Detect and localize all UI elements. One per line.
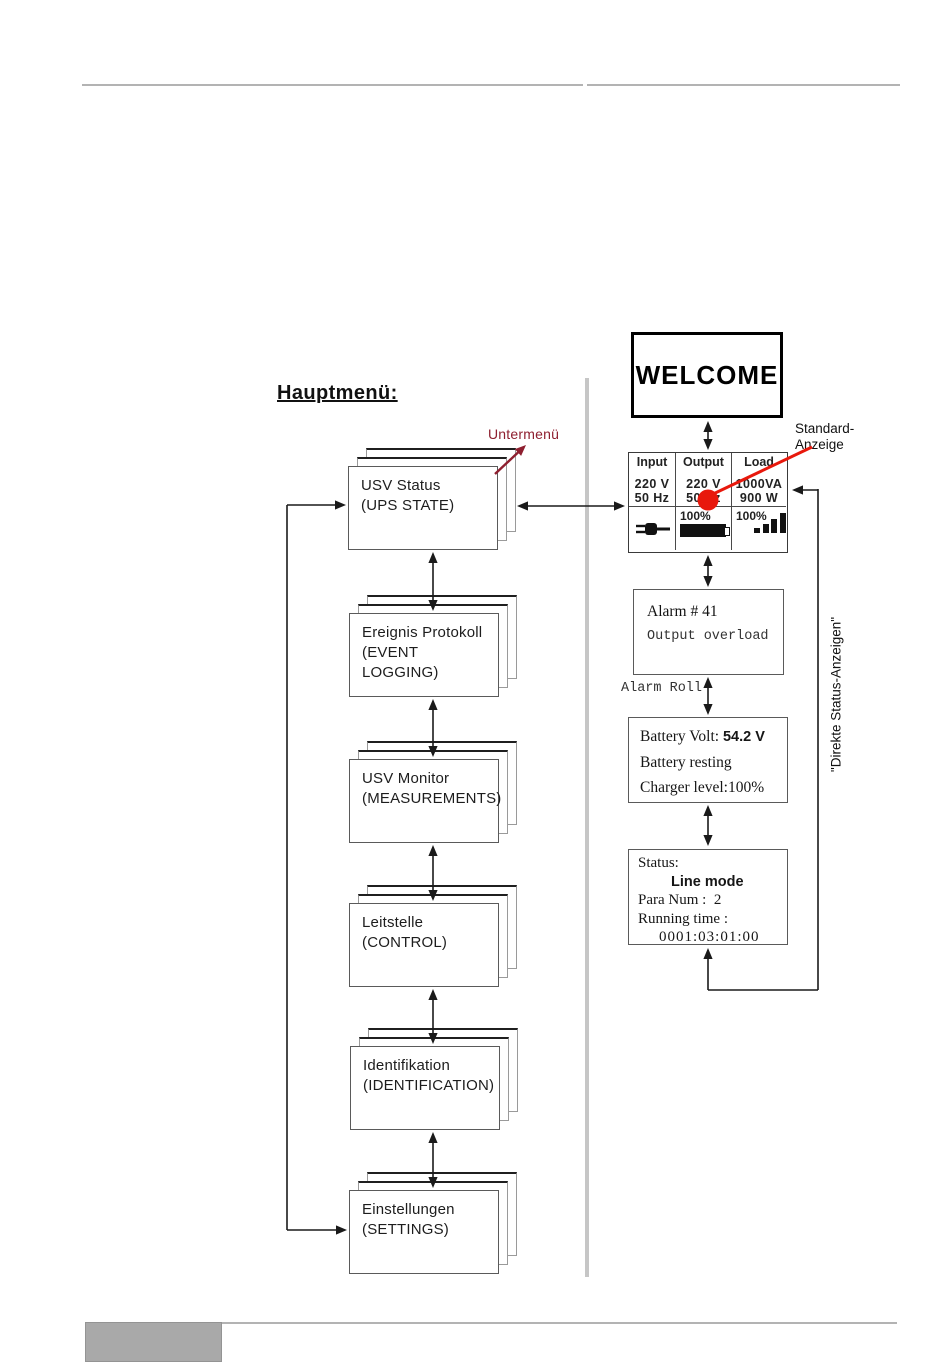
menu-label-de: Leitstelle bbox=[362, 914, 423, 931]
battery-display-box: Battery Volt: 54.2 V Battery resting Cha… bbox=[628, 717, 788, 803]
display-input-cell: Input 220 V 50 Hz bbox=[629, 453, 676, 507]
arrowhead bbox=[428, 699, 437, 710]
menu-label-de: Identifikation bbox=[363, 1057, 450, 1074]
menu-label-en: (SETTINGS) bbox=[362, 1221, 449, 1238]
arrowhead bbox=[614, 501, 625, 510]
menu-item-settings: Einstellungen (SETTINGS) bbox=[349, 1190, 499, 1274]
arrowhead bbox=[703, 421, 712, 432]
arrowhead bbox=[792, 485, 803, 494]
arrowhead bbox=[703, 555, 712, 566]
arrowhead bbox=[703, 805, 712, 816]
alarm-display-box: Alarm # 41 Output overload bbox=[633, 589, 784, 675]
arrowhead bbox=[336, 1225, 347, 1234]
standard-display-label: Standard- Anzeige bbox=[795, 421, 854, 453]
header-rule-right bbox=[587, 84, 900, 86]
column-divider bbox=[585, 378, 589, 1277]
arrowhead bbox=[428, 552, 437, 563]
display-load-cell: Load 1000VA 900 W bbox=[732, 453, 786, 507]
manual-page: Hauptmenü: Untermenü USV Status (UPS STA… bbox=[0, 0, 950, 1364]
menu-label-en: (IDENTIFICATION) bbox=[363, 1077, 494, 1094]
main-menu-heading: Hauptmenü: bbox=[277, 382, 398, 405]
menu-label-en: (CONTROL) bbox=[362, 934, 447, 951]
menu-item-control: Leitstelle (CONTROL) bbox=[349, 903, 499, 987]
arrowhead bbox=[515, 445, 526, 456]
arrowhead bbox=[703, 704, 712, 715]
arrowhead bbox=[335, 500, 346, 509]
menu-label-en: (UPS STATE) bbox=[361, 497, 454, 514]
arrowhead bbox=[703, 835, 712, 846]
menu-card: USV Status (UPS STATE) bbox=[348, 466, 498, 550]
display-mains-cell bbox=[629, 507, 676, 550]
welcome-text: WELCOME bbox=[636, 360, 779, 391]
menu-card: Ereignis Protokoll (EVENT LOGGING) bbox=[349, 613, 499, 697]
status-display-box: Status: Line mode Para Num : 2 Running t… bbox=[628, 849, 788, 945]
welcome-screen-box: WELCOME bbox=[631, 332, 783, 418]
display-loadbars-cell: 100% bbox=[732, 507, 786, 550]
menu-card: USV Monitor (MEASUREMENTS) bbox=[349, 759, 499, 843]
alarm-roll-label: Alarm Roll bbox=[621, 681, 702, 696]
menu-item-event-logging: Ereignis Protokoll (EVENT LOGGING) bbox=[349, 613, 499, 697]
direkte-status-label-wrap: "Direkte Status-Anzeigen" bbox=[736, 687, 936, 702]
footer-block bbox=[85, 1322, 222, 1362]
menu-item-measurements: USV Monitor (MEASUREMENTS) bbox=[349, 759, 499, 843]
menu-label-de: USV Monitor bbox=[362, 770, 449, 787]
standard-status-display: Input 220 V 50 Hz Output 220 V 50 Hz Loa… bbox=[628, 452, 788, 553]
arrowhead bbox=[703, 677, 712, 688]
menu-label-de: Ereignis Protokoll bbox=[362, 624, 482, 641]
menu-card: Einstellungen (SETTINGS) bbox=[349, 1190, 499, 1274]
menu-item-identification: Identifikation (IDENTIFICATION) bbox=[350, 1046, 500, 1130]
arrowhead bbox=[428, 1132, 437, 1143]
menu-label-en: (EVENT LOGGING) bbox=[362, 644, 439, 681]
header-rule-left bbox=[82, 84, 583, 86]
menu-card: Identifikation (IDENTIFICATION) bbox=[350, 1046, 500, 1130]
arrowhead bbox=[428, 845, 437, 856]
submenu-label: Untermenü bbox=[488, 426, 559, 442]
footer-rule bbox=[220, 1322, 897, 1324]
menu-item-ups-state: USV Status (UPS STATE) bbox=[348, 466, 498, 550]
menu-label-en: (MEASUREMENTS) bbox=[362, 790, 501, 807]
arrowhead bbox=[428, 989, 437, 1000]
arrowhead bbox=[703, 576, 712, 587]
display-battery-cell: 100% bbox=[676, 507, 732, 550]
arrowhead bbox=[517, 501, 528, 510]
menu-label-de: USV Status bbox=[361, 477, 441, 494]
display-output-cell: Output 220 V 50 Hz bbox=[676, 453, 732, 507]
arrowhead bbox=[703, 439, 712, 450]
plug-icon bbox=[633, 520, 671, 538]
menu-card: Leitstelle (CONTROL) bbox=[349, 903, 499, 987]
menu-label-de: Einstellungen bbox=[362, 1201, 455, 1218]
battery-icon bbox=[680, 524, 726, 537]
direkte-status-label: "Direkte Status-Anzeigen" bbox=[829, 595, 844, 795]
arrowhead bbox=[703, 948, 712, 959]
